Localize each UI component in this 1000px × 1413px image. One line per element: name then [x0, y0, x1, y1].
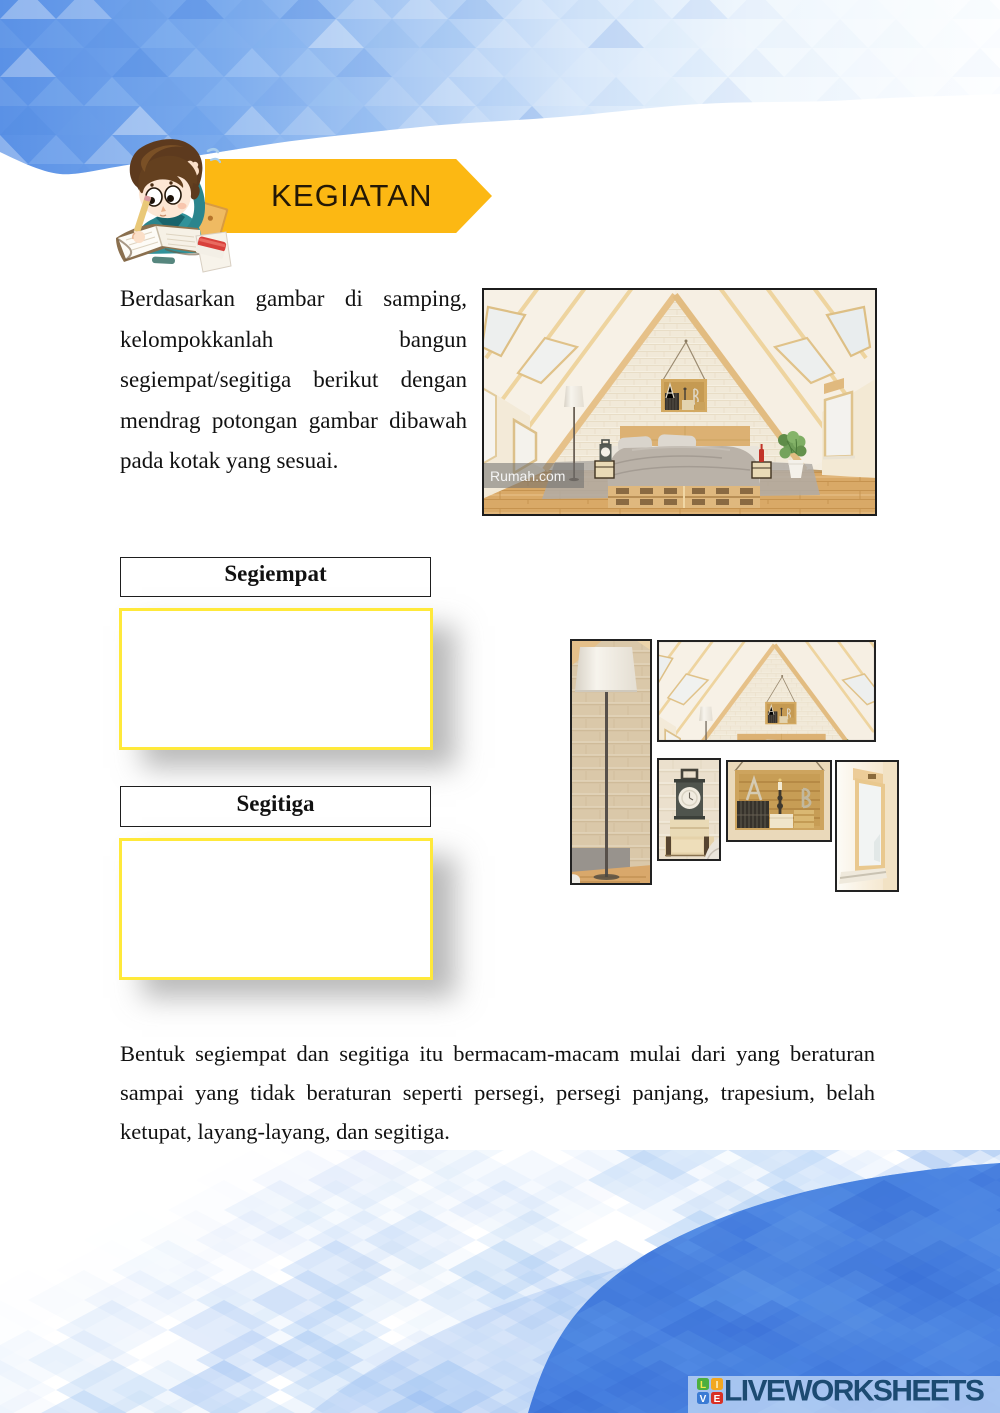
svg-text:E: E: [714, 1394, 721, 1405]
svg-text:LIVEWORKSHEETS: LIVEWORKSHEETS: [724, 1375, 984, 1408]
svg-text:L: L: [700, 1380, 706, 1391]
svg-text:V: V: [700, 1394, 707, 1405]
svg-text:Rumah.com: Rumah.com: [490, 468, 565, 484]
svg-text:I: I: [716, 1380, 719, 1391]
